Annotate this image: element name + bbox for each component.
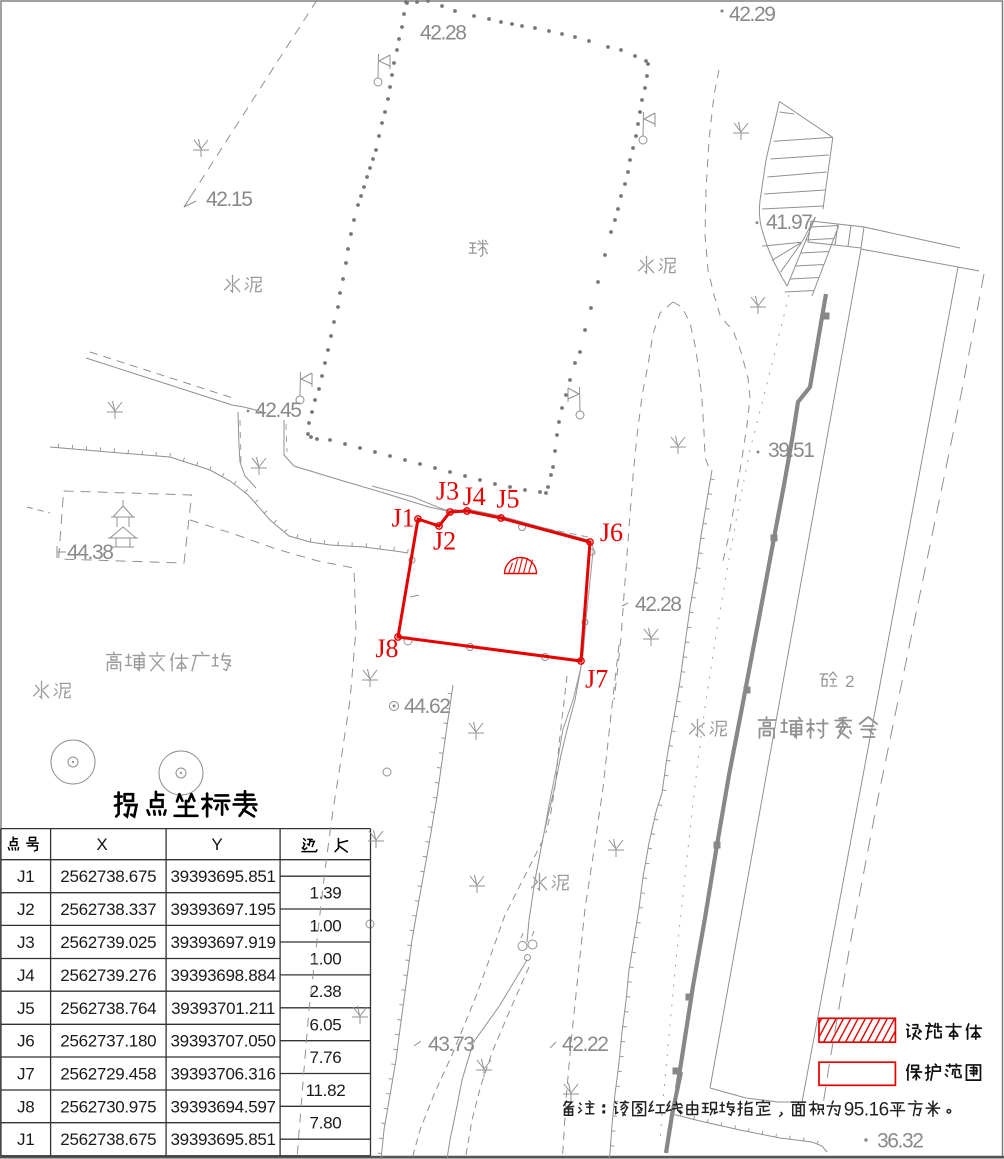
svg-text:J6: J6 bbox=[17, 1032, 34, 1051]
svg-text:J1: J1 bbox=[392, 504, 415, 533]
svg-text:J2: J2 bbox=[17, 900, 34, 919]
svg-text:42.15: 42.15 bbox=[206, 188, 252, 211]
svg-text:X: X bbox=[96, 835, 107, 854]
svg-text:Y: Y bbox=[211, 835, 222, 854]
svg-text:J5: J5 bbox=[17, 999, 34, 1018]
svg-text:41.97: 41.97 bbox=[766, 211, 812, 234]
svg-text:2: 2 bbox=[845, 672, 854, 691]
svg-text:J1: J1 bbox=[17, 867, 34, 886]
svg-text:44.38: 44.38 bbox=[67, 541, 113, 564]
svg-text:2562739.025: 2562739.025 bbox=[60, 933, 156, 952]
svg-text:2562739.276: 2562739.276 bbox=[60, 966, 156, 985]
svg-text:36.32: 36.32 bbox=[877, 1130, 923, 1153]
svg-text:J8: J8 bbox=[17, 1097, 34, 1116]
svg-text:1.39: 1.39 bbox=[310, 884, 342, 903]
svg-text:42.22: 42.22 bbox=[562, 1033, 608, 1056]
svg-text:42.29: 42.29 bbox=[729, 3, 775, 26]
svg-text:J3: J3 bbox=[17, 933, 34, 952]
svg-text:2562737.180: 2562737.180 bbox=[60, 1032, 156, 1051]
svg-text:39393697.919: 39393697.919 bbox=[171, 933, 276, 952]
svg-text:39393695.851: 39393695.851 bbox=[171, 1130, 276, 1149]
svg-text:39393697.195: 39393697.195 bbox=[171, 900, 276, 919]
svg-text:J2: J2 bbox=[433, 526, 456, 555]
svg-text:95.16: 95.16 bbox=[844, 1100, 889, 1121]
svg-text:2562738.764: 2562738.764 bbox=[60, 999, 156, 1018]
svg-text:2562730.975: 2562730.975 bbox=[60, 1097, 156, 1116]
svg-text:J3: J3 bbox=[436, 477, 459, 506]
svg-text:39393698.884: 39393698.884 bbox=[171, 966, 276, 985]
svg-text:39393706.316: 39393706.316 bbox=[171, 1065, 276, 1084]
svg-text:42.28: 42.28 bbox=[420, 22, 466, 45]
svg-text:J8: J8 bbox=[375, 634, 398, 663]
svg-text:2562738.675: 2562738.675 bbox=[60, 1130, 156, 1149]
svg-text:1.00: 1.00 bbox=[310, 916, 342, 935]
svg-text:7.80: 7.80 bbox=[310, 1114, 342, 1133]
svg-text:2562738.675: 2562738.675 bbox=[60, 867, 156, 886]
svg-text:39.51: 39.51 bbox=[768, 439, 814, 462]
svg-text:7.76: 7.76 bbox=[310, 1048, 342, 1067]
svg-text:J5: J5 bbox=[496, 485, 519, 514]
svg-text:43.73: 43.73 bbox=[428, 1033, 474, 1056]
svg-text:39393694.597: 39393694.597 bbox=[171, 1097, 276, 1116]
svg-text:39393695.851: 39393695.851 bbox=[171, 867, 276, 886]
svg-text:11.82: 11.82 bbox=[306, 1081, 346, 1100]
svg-text:6.05: 6.05 bbox=[310, 1015, 342, 1034]
svg-text:42.28: 42.28 bbox=[635, 593, 681, 616]
svg-text:J4: J4 bbox=[463, 482, 486, 511]
svg-text:42.45: 42.45 bbox=[255, 399, 301, 422]
svg-text:44.62: 44.62 bbox=[404, 695, 450, 718]
svg-text:39393707.050: 39393707.050 bbox=[171, 1032, 276, 1051]
svg-text:J4: J4 bbox=[17, 966, 34, 985]
svg-text:2562738.337: 2562738.337 bbox=[60, 900, 156, 919]
svg-text:J7: J7 bbox=[17, 1065, 34, 1084]
svg-text:2562729.458: 2562729.458 bbox=[60, 1065, 156, 1084]
svg-text:39393701.211: 39393701.211 bbox=[171, 999, 275, 1018]
svg-text:J6: J6 bbox=[600, 518, 623, 547]
svg-text:J1: J1 bbox=[17, 1130, 34, 1149]
svg-text:J7: J7 bbox=[585, 665, 608, 694]
svg-text:2.38: 2.38 bbox=[310, 982, 342, 1001]
